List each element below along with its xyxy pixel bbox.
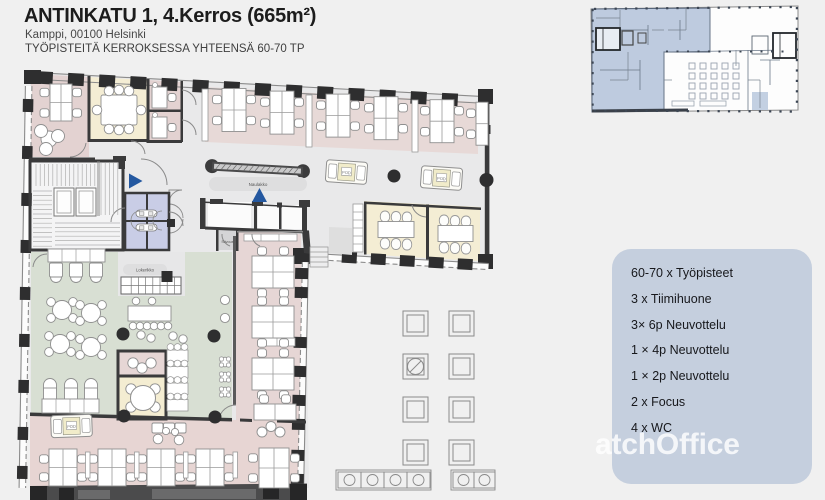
svg-text:POD: POD <box>437 176 446 182</box>
svg-text:POD: POD <box>342 170 351 176</box>
svg-text:Siivous: Siivous <box>221 240 233 244</box>
svg-text:Lokerikko: Lokerikko <box>136 268 155 273</box>
svg-text:POD: POD <box>67 424 76 429</box>
svg-text:Naulakko: Naulakko <box>249 182 268 187</box>
